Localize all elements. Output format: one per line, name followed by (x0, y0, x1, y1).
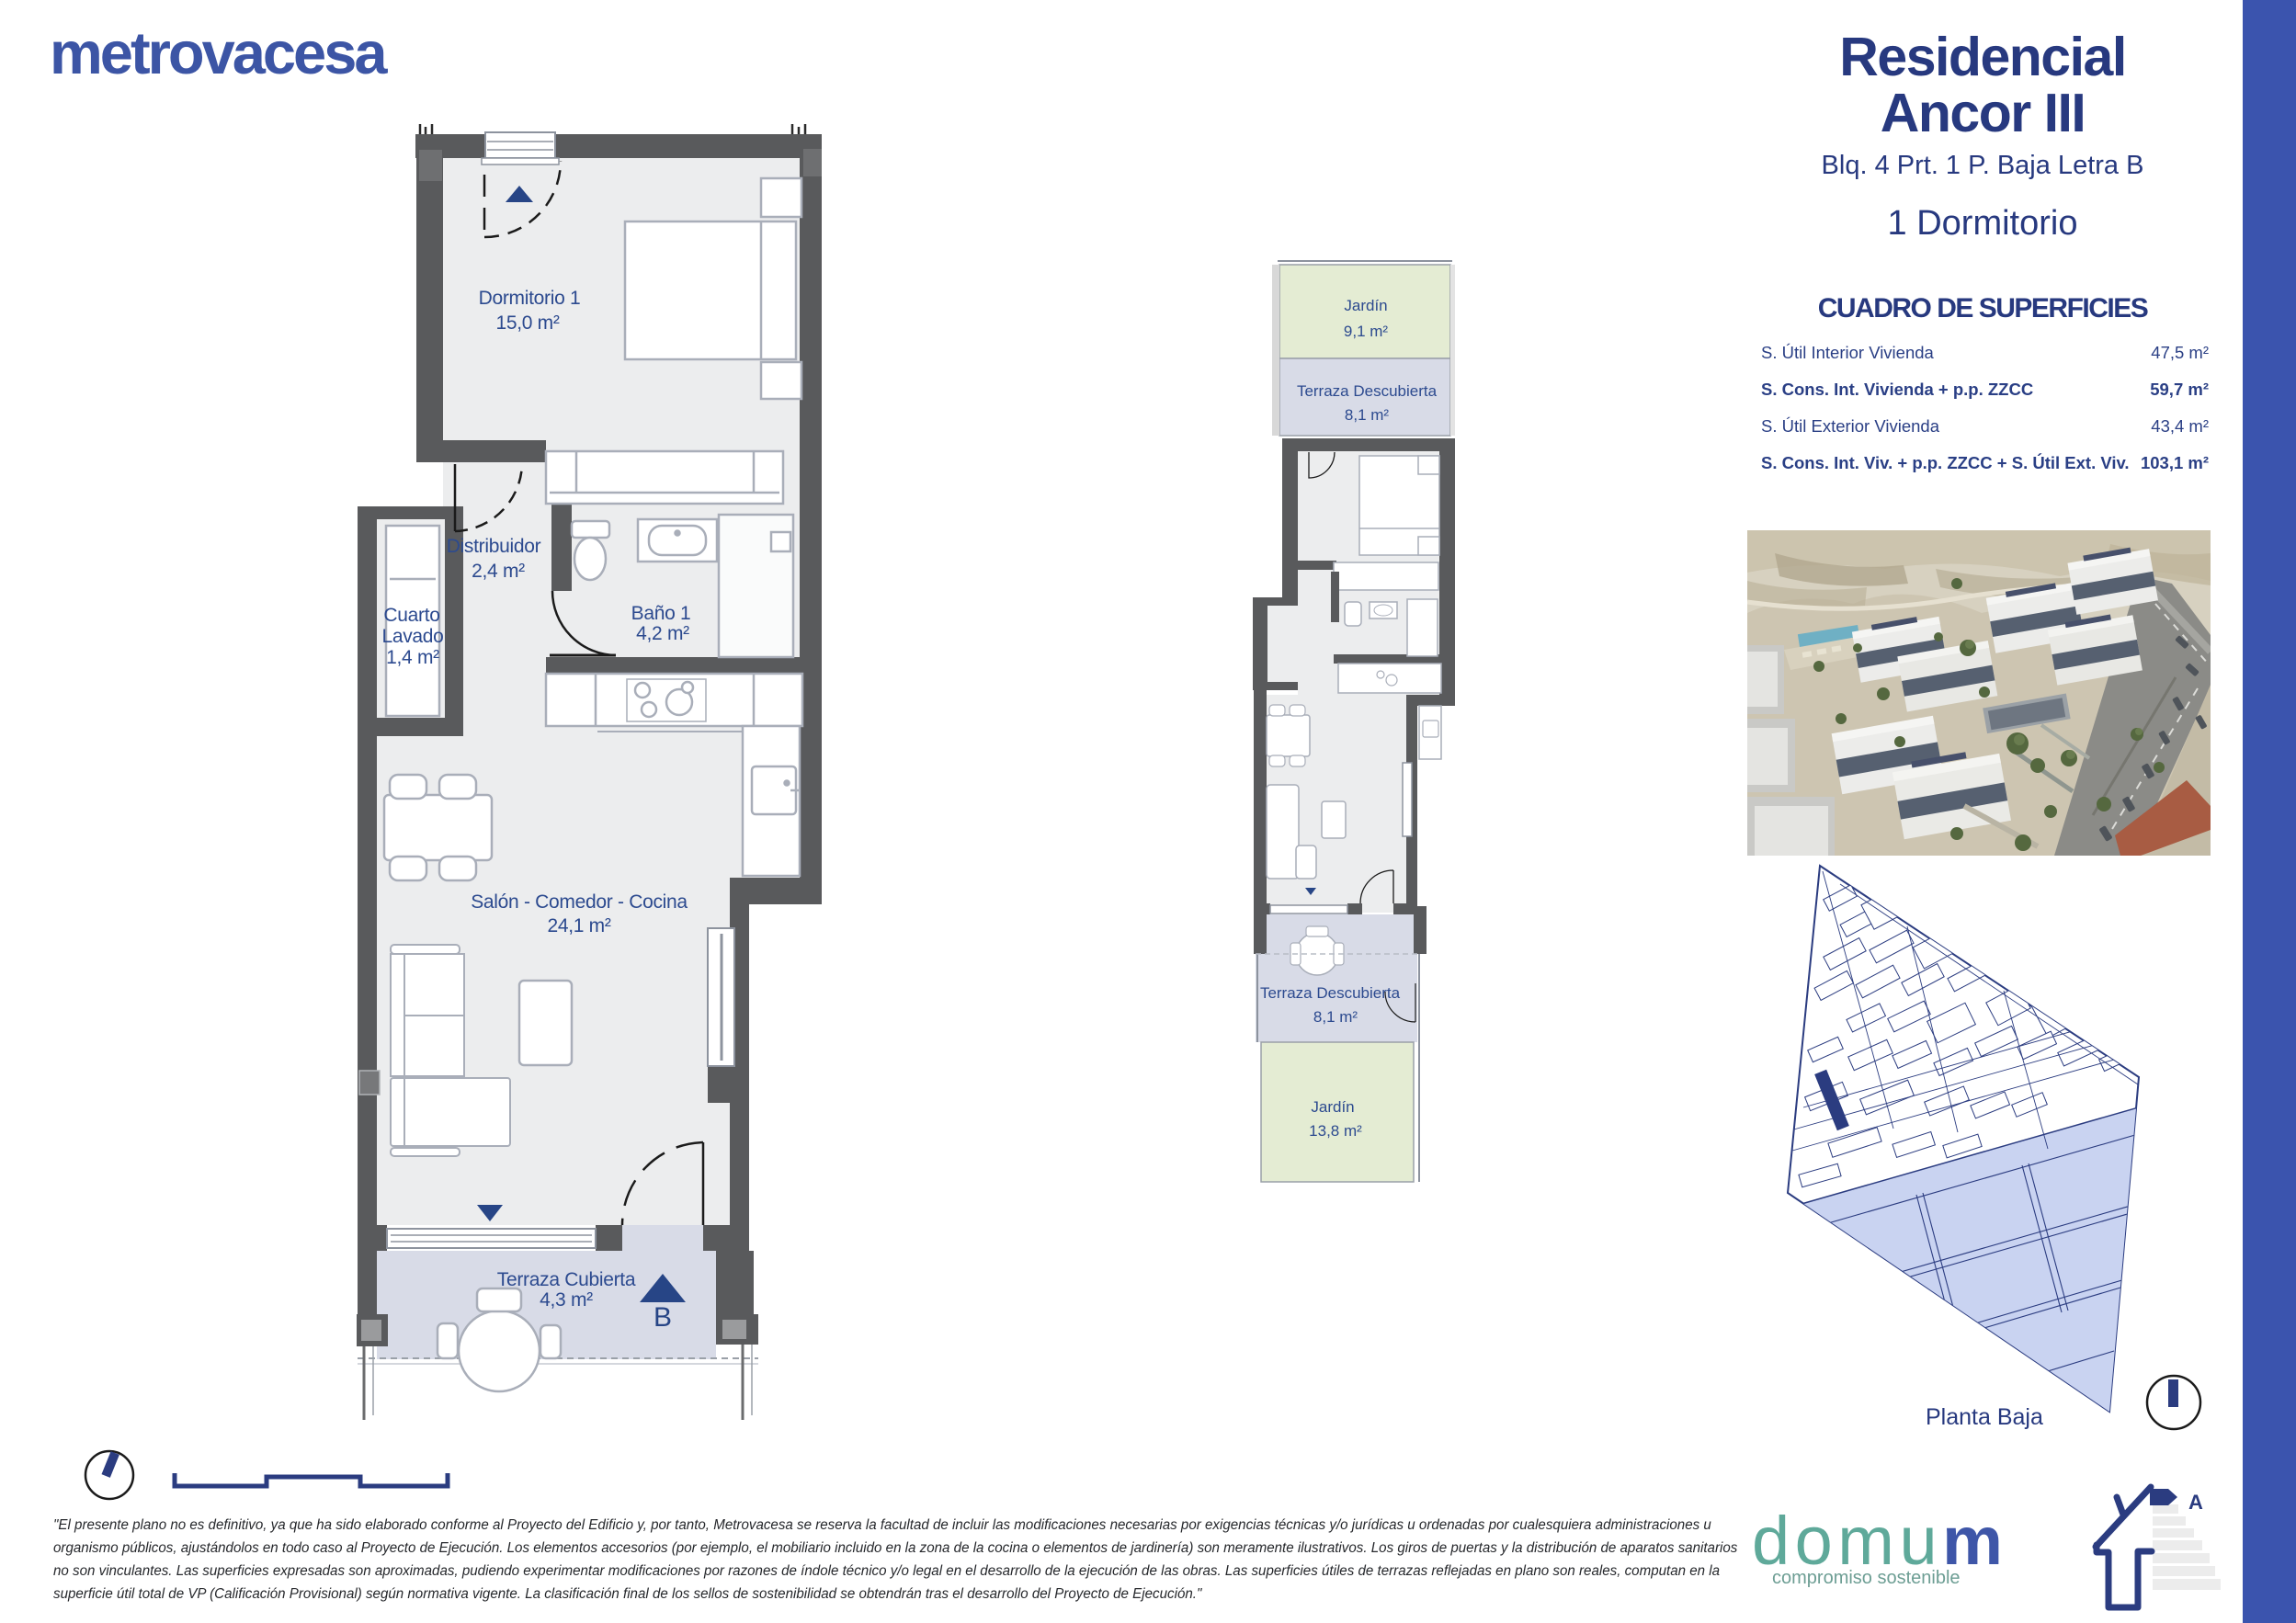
svg-text:Lavado: Lavado (381, 626, 443, 647)
svg-text:13,8 m²: 13,8 m² (1309, 1122, 1362, 1140)
svg-text:Salón - Comedor - Cocina: Salón - Comedor - Cocina (471, 891, 688, 913)
svg-text:Dormitorio 1: Dormitorio 1 (479, 288, 581, 309)
svg-text:B: B (654, 1302, 672, 1333)
svg-text:15,0 m²: 15,0 m² (495, 312, 559, 334)
svg-text:Terraza Descubierta: Terraza Descubierta (1297, 382, 1438, 400)
svg-text:4,3 m²: 4,3 m² (540, 1289, 593, 1311)
svg-text:Baño 1: Baño 1 (631, 603, 691, 624)
svg-text:8,1 m²: 8,1 m² (1313, 1008, 1358, 1026)
svg-text:1,4 m²: 1,4 m² (386, 647, 439, 668)
svg-text:Jardín: Jardín (1311, 1098, 1354, 1116)
svg-text:8,1 m²: 8,1 m² (1345, 406, 1390, 424)
svg-text:24,1 m²: 24,1 m² (547, 915, 610, 936)
svg-text:4,2 m²: 4,2 m² (636, 623, 689, 644)
svg-text:2,4 m²: 2,4 m² (472, 561, 525, 582)
svg-text:Cuarto: Cuarto (383, 605, 439, 626)
svg-text:Terraza Descubierta: Terraza Descubierta (1260, 984, 1401, 1002)
svg-text:A: A (2188, 1491, 2203, 1514)
svg-text:Distribuidor: Distribuidor (447, 536, 541, 557)
svg-text:Jardín: Jardín (1344, 297, 1387, 314)
svg-text:9,1 m²: 9,1 m² (1344, 323, 1389, 340)
svg-text:Terraza Cubierta: Terraza Cubierta (497, 1269, 636, 1290)
